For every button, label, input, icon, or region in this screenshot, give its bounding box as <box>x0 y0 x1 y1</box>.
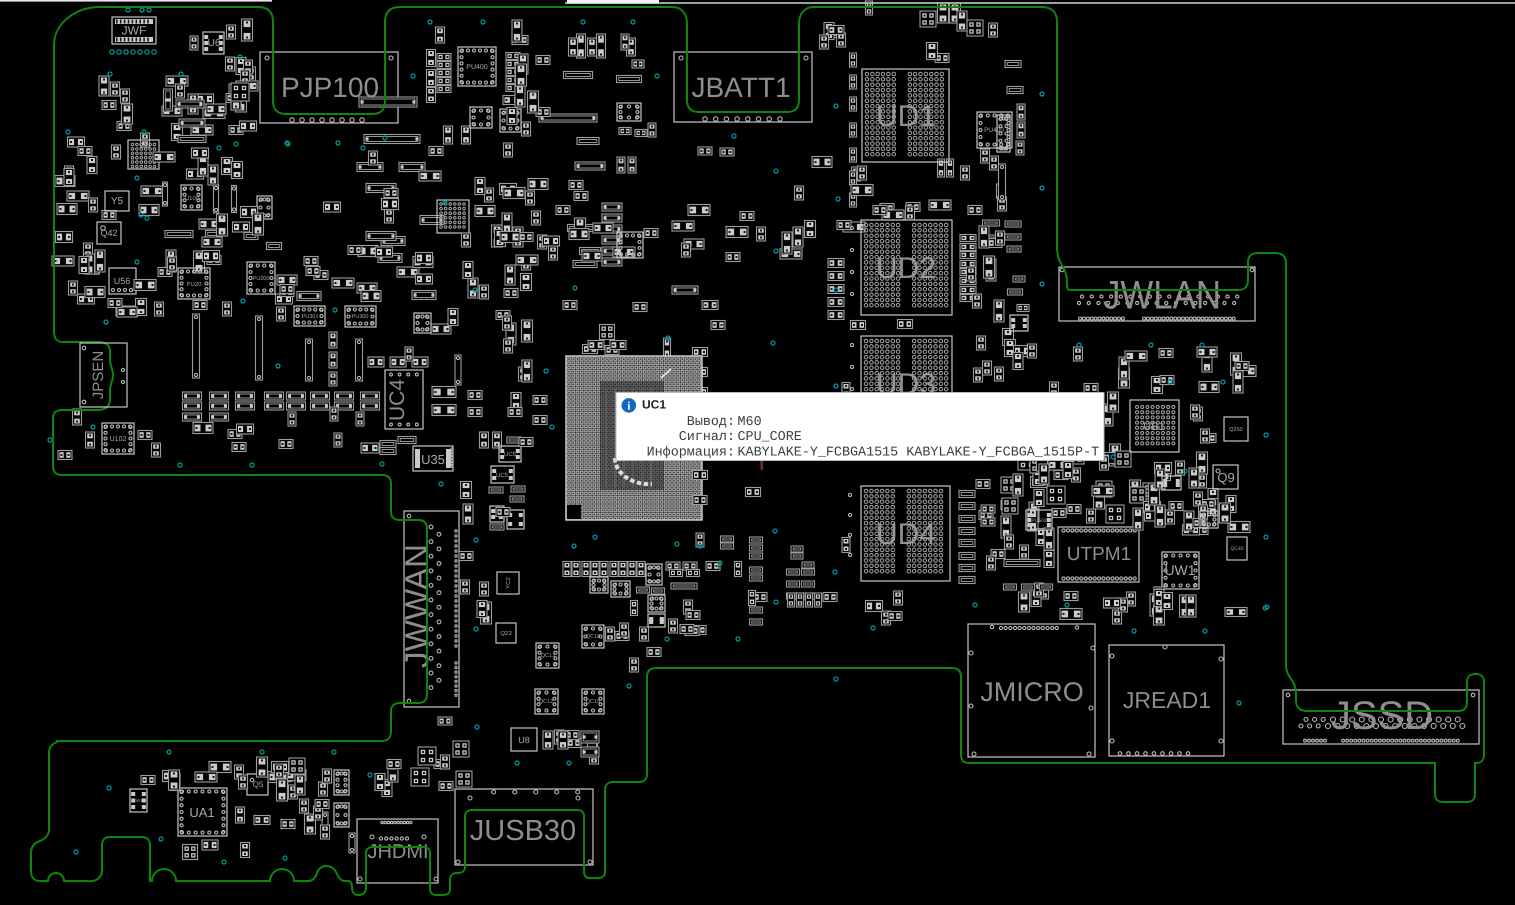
svg-text:JUSB30: JUSB30 <box>470 815 576 847</box>
svg-text:JWLAN: JWLAN <box>1103 274 1221 318</box>
svg-text:U102: U102 <box>110 436 127 443</box>
svg-text:UTPM1: UTPM1 <box>1067 544 1131 565</box>
svg-text:PU200: PU200 <box>253 276 270 282</box>
svg-text:QC12: QC12 <box>539 699 553 705</box>
svg-text:QC40: QC40 <box>1230 546 1243 552</box>
svg-text:U6: U6 <box>208 38 221 49</box>
svg-text:QC13: QC13 <box>541 653 555 659</box>
svg-text:UC5: UC5 <box>496 472 509 479</box>
svg-text:QC16: QC16 <box>586 634 600 640</box>
svg-text:PU400: PU400 <box>466 64 488 71</box>
svg-text:U8: U8 <box>518 735 530 745</box>
svg-text:UW1: UW1 <box>1164 562 1195 578</box>
svg-text:QC15: QC15 <box>586 699 600 705</box>
svg-text:PU300: PU300 <box>352 314 369 320</box>
svg-text:U35: U35 <box>421 452 445 467</box>
svg-text:Y5: Y5 <box>111 196 124 207</box>
svg-text:U100: U100 <box>185 195 200 202</box>
svg-text:UA1: UA1 <box>189 805 214 820</box>
svg-text:DA1: DA1 <box>134 798 143 803</box>
svg-text:JWWAN: JWWAN <box>398 544 435 668</box>
svg-text:PU502: PU502 <box>1031 518 1047 524</box>
svg-text:Q5: Q5 <box>253 780 264 789</box>
svg-text:Q42: Q42 <box>100 228 117 238</box>
svg-text:JREAD1: JREAD1 <box>1123 687 1211 713</box>
svg-text:JHDMI: JHDMI <box>367 841 428 863</box>
svg-text:UC4: UC4 <box>386 379 409 421</box>
svg-text:UC5: UC5 <box>504 451 517 458</box>
svg-text:JBATT1: JBATT1 <box>691 72 790 103</box>
svg-text:JWF: JWF <box>122 24 147 38</box>
svg-text:U56: U56 <box>114 276 131 286</box>
svg-text:Q23: Q23 <box>500 630 512 637</box>
svg-text:JSSD: JSSD <box>1331 694 1433 738</box>
svg-text:PU301: PU301 <box>302 314 319 320</box>
svg-text:JMICRO: JMICRO <box>980 677 1084 707</box>
svg-text:PU20: PU20 <box>186 281 202 288</box>
svg-text:YC2: YC2 <box>505 577 512 589</box>
